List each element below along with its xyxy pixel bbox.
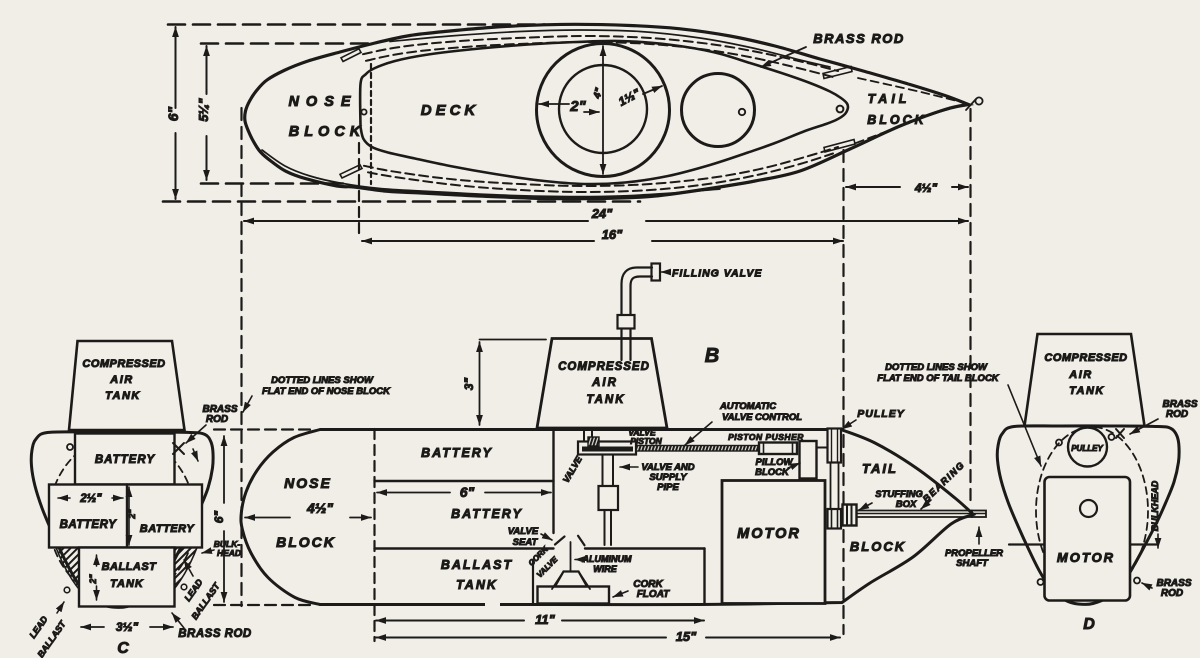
svg-text:MOTOR: MOTOR bbox=[1057, 550, 1115, 565]
svg-text:BOX: BOX bbox=[896, 499, 917, 510]
svg-text:ROD: ROD bbox=[206, 414, 228, 425]
svg-text:BATTERY: BATTERY bbox=[421, 446, 493, 460]
svg-text:BATTERY: BATTERY bbox=[95, 454, 156, 466]
svg-text:TANK: TANK bbox=[586, 394, 625, 406]
svg-text:ALUMINUM: ALUMINUM bbox=[582, 554, 632, 564]
svg-text:ROD: ROD bbox=[1161, 588, 1183, 599]
svg-text:COMPRESSED: COMPRESSED bbox=[558, 361, 650, 373]
svg-text:WIRE: WIRE bbox=[593, 564, 617, 574]
svg-text:SHAFT: SHAFT bbox=[956, 558, 989, 569]
svg-text:BATTERY: BATTERY bbox=[451, 507, 523, 521]
svg-text:SEAT: SEAT bbox=[513, 537, 539, 548]
svg-text:COMPRESSED: COMPRESSED bbox=[1044, 352, 1127, 364]
svg-text:FLAT END OF TAIL BLOCK: FLAT END OF TAIL BLOCK bbox=[877, 373, 1000, 384]
svg-text:AIR: AIR bbox=[591, 377, 618, 389]
svg-text:BLOCK: BLOCK bbox=[289, 124, 366, 140]
svg-text:DOTTED LINES SHOW: DOTTED LINES SHOW bbox=[885, 362, 988, 373]
svg-text:PIPE: PIPE bbox=[657, 482, 679, 493]
svg-text:4½": 4½" bbox=[306, 500, 333, 516]
svg-text:DECK: DECK bbox=[421, 102, 480, 119]
svg-text:B: B bbox=[705, 345, 719, 367]
svg-text:BLOCK: BLOCK bbox=[755, 467, 790, 478]
svg-text:HEAD: HEAD bbox=[217, 548, 241, 558]
svg-text:NOSE: NOSE bbox=[284, 475, 332, 491]
svg-text:FLAT END OF NOSE BLOCK: FLAT END OF NOSE BLOCK bbox=[262, 386, 391, 397]
svg-text:BLOCK: BLOCK bbox=[850, 539, 906, 554]
svg-text:TANK: TANK bbox=[105, 390, 141, 402]
svg-text:3½": 3½" bbox=[116, 620, 139, 634]
svg-text:ROD: ROD bbox=[1166, 409, 1188, 420]
svg-text:BULKHEAD: BULKHEAD bbox=[1150, 480, 1160, 531]
svg-text:FILLING VALVE: FILLING VALVE bbox=[672, 268, 762, 280]
svg-text:2½": 2½" bbox=[79, 493, 102, 505]
svg-text:VALVE CONTROL: VALVE CONTROL bbox=[722, 412, 802, 423]
svg-text:MOTOR: MOTOR bbox=[737, 526, 801, 542]
svg-text:BATTERY: BATTERY bbox=[60, 519, 118, 531]
svg-text:BATTERY: BATTERY bbox=[140, 523, 196, 535]
svg-text:NOSE: NOSE bbox=[288, 94, 357, 110]
svg-text:BRASS ROD: BRASS ROD bbox=[178, 628, 252, 640]
svg-text:TANK: TANK bbox=[456, 578, 498, 592]
svg-text:BALLAST: BALLAST bbox=[441, 558, 513, 572]
svg-text:4½": 4½" bbox=[914, 181, 938, 195]
svg-text:15": 15" bbox=[676, 629, 697, 644]
svg-text:6": 6" bbox=[165, 106, 181, 121]
svg-text:VALVE: VALVE bbox=[508, 526, 539, 537]
svg-text:PISTON PUSHER: PISTON PUSHER bbox=[728, 432, 804, 442]
svg-text:D: D bbox=[1083, 616, 1095, 633]
svg-text:AIR: AIR bbox=[109, 374, 133, 386]
svg-text:BLOCK: BLOCK bbox=[276, 534, 336, 550]
svg-text:DOTTED LINES SHOW: DOTTED LINES SHOW bbox=[271, 375, 374, 386]
svg-text:6": 6" bbox=[212, 511, 226, 524]
svg-text:COMPRESSED: COMPRESSED bbox=[82, 358, 165, 370]
svg-text:FLOAT: FLOAT bbox=[637, 589, 670, 600]
svg-text:3": 3" bbox=[462, 378, 476, 391]
svg-text:TANK: TANK bbox=[110, 578, 144, 590]
svg-text:24": 24" bbox=[591, 206, 613, 221]
svg-text:BRASS ROD: BRASS ROD bbox=[813, 31, 905, 46]
svg-text:6": 6" bbox=[460, 484, 475, 500]
svg-text:TAIL: TAIL bbox=[868, 92, 911, 106]
svg-text:AIR: AIR bbox=[1068, 369, 1092, 381]
svg-text:PISTON: PISTON bbox=[630, 436, 662, 446]
svg-text:BLOCK: BLOCK bbox=[867, 113, 926, 127]
svg-text:5¼": 5¼" bbox=[197, 97, 211, 121]
svg-text:TAIL: TAIL bbox=[862, 461, 898, 476]
svg-text:TANK: TANK bbox=[1069, 385, 1105, 397]
svg-text:C: C bbox=[117, 640, 129, 657]
svg-text:AUTOMATIC: AUTOMATIC bbox=[719, 401, 776, 412]
svg-text:PULLEY: PULLEY bbox=[1071, 444, 1103, 453]
svg-text:PULLEY: PULLEY bbox=[857, 408, 904, 420]
svg-text:2": 2" bbox=[88, 574, 98, 585]
svg-text:11": 11" bbox=[535, 612, 555, 627]
svg-text:16": 16" bbox=[602, 227, 623, 242]
svg-text:2": 2" bbox=[127, 509, 137, 520]
svg-text:BALLAST: BALLAST bbox=[102, 561, 158, 573]
